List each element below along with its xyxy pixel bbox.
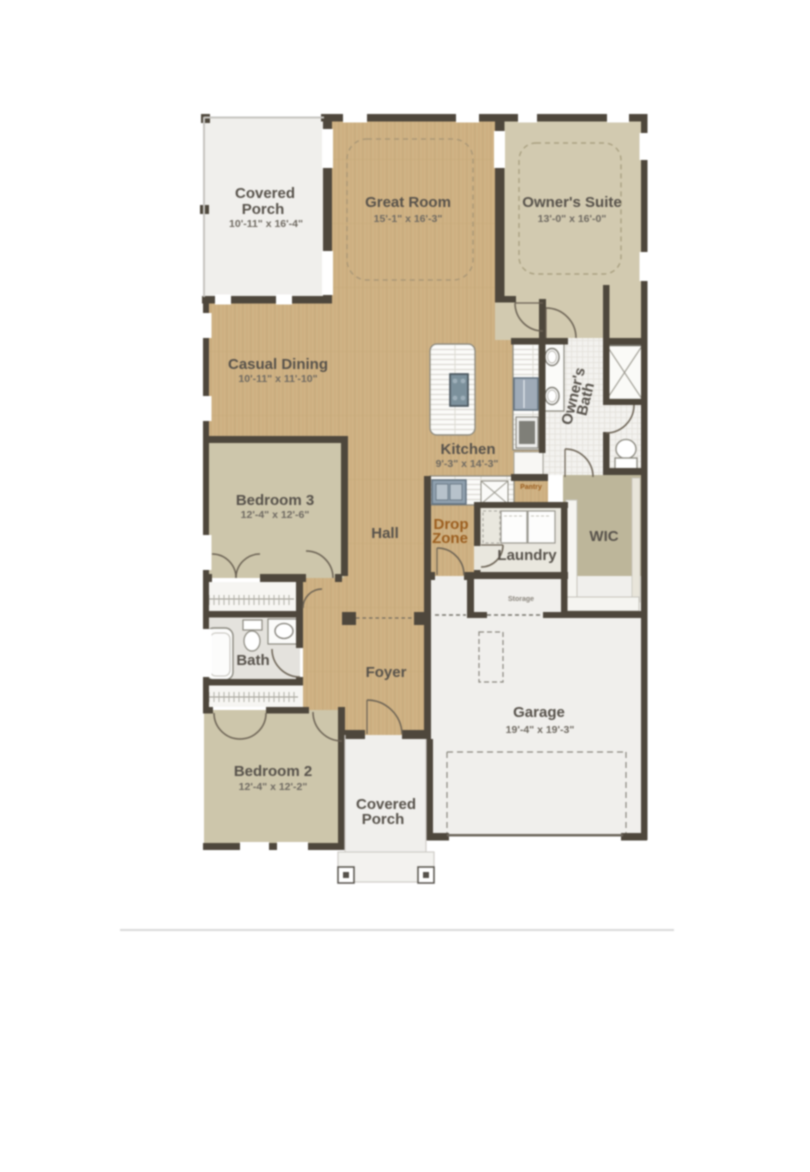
svg-text:Kitchen: Kitchen xyxy=(440,441,495,458)
svg-text:WIC: WIC xyxy=(589,528,618,545)
svg-text:13'-0" x 16'-0": 13'-0" x 16'-0" xyxy=(538,213,607,225)
svg-text:Owner's Suite: Owner's Suite xyxy=(522,194,621,211)
svg-text:Zone: Zone xyxy=(432,530,468,547)
svg-text:Foyer: Foyer xyxy=(366,664,407,681)
svg-text:Bedroom 3: Bedroom 3 xyxy=(236,492,314,509)
svg-text:12'-4" x 12'-6": 12'-4" x 12'-6" xyxy=(241,509,310,521)
svg-text:Hall: Hall xyxy=(371,525,399,542)
svg-text:9'-3" x 14'-3": 9'-3" x 14'-3" xyxy=(436,458,499,470)
svg-text:19'-4" x 19'-3": 19'-4" x 19'-3" xyxy=(506,724,575,736)
svg-text:Great Room: Great Room xyxy=(365,194,451,211)
svg-text:15'-1" x 16'-3": 15'-1" x 16'-3" xyxy=(374,213,443,225)
svg-text:12'-4" x 12'-2": 12'-4" x 12'-2" xyxy=(239,781,308,793)
svg-text:Bath: Bath xyxy=(236,652,269,669)
svg-text:Laundry: Laundry xyxy=(497,547,557,564)
svg-text:Covered: Covered xyxy=(235,185,295,202)
svg-text:Garage: Garage xyxy=(513,704,565,721)
svg-text:10'-11" x 11'-10": 10'-11" x 11'-10" xyxy=(238,373,317,385)
svg-text:10'-11" x 16'-4": 10'-11" x 16'-4" xyxy=(229,218,303,230)
svg-text:Porch: Porch xyxy=(362,811,405,828)
svg-text:Bedroom 2: Bedroom 2 xyxy=(234,763,312,780)
svg-text:Casual Dining: Casual Dining xyxy=(228,356,328,373)
svg-text:Pantry: Pantry xyxy=(520,484,542,491)
svg-text:Storage: Storage xyxy=(508,596,534,603)
svg-text:Porch: Porch xyxy=(242,201,285,218)
